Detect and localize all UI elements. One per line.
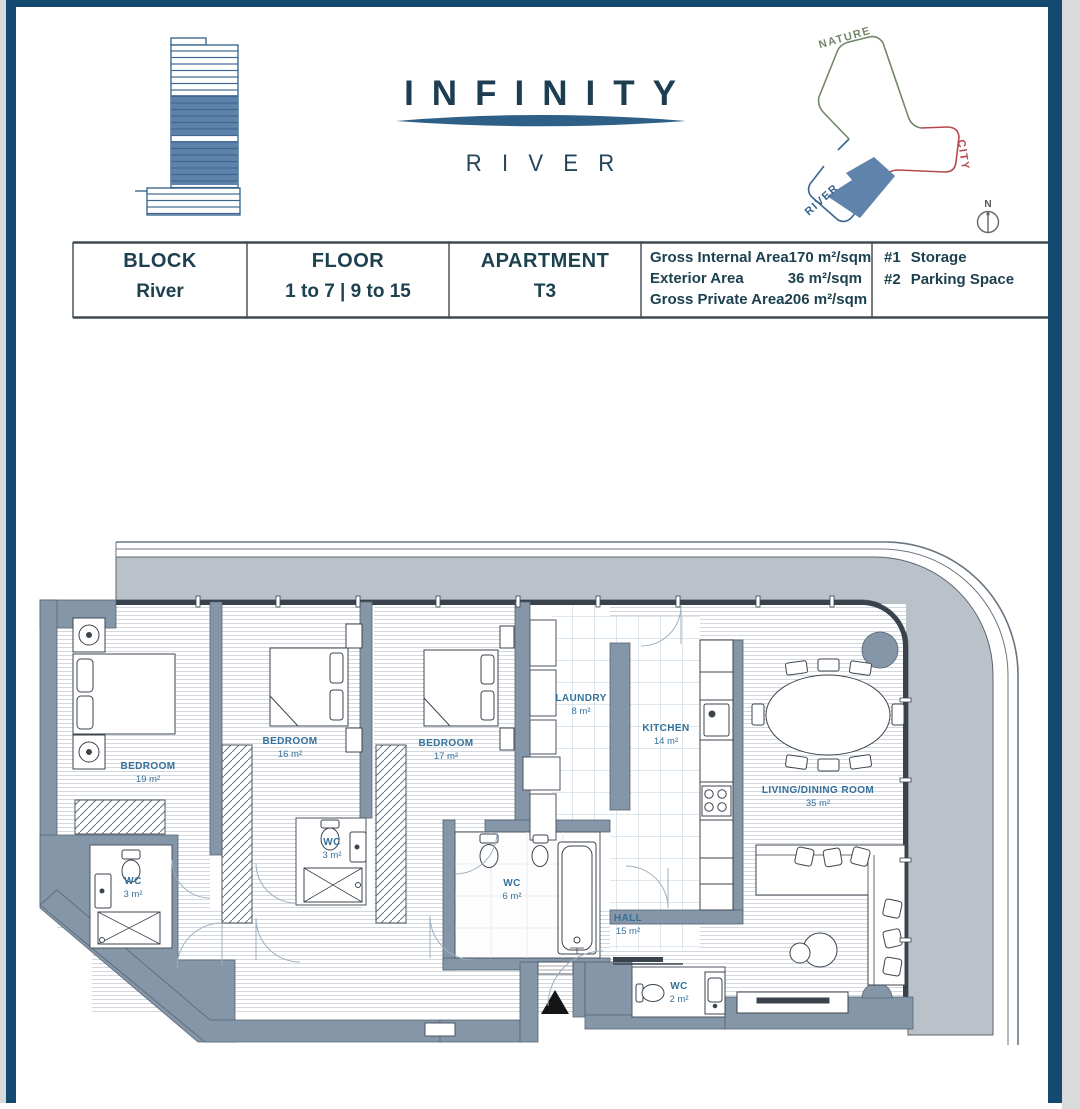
room-label-wc-2: WC 2 m²	[670, 980, 689, 1006]
site-plan-diagram	[809, 37, 999, 233]
area-row: Gross Private Area 206 m²/sqm	[650, 291, 862, 308]
area-row: Gross Internal Area 170 m²/sqm	[650, 249, 862, 266]
area-row: Exterior Area 36 m²/sqm	[650, 270, 862, 287]
compass-north-label: N	[984, 199, 991, 210]
table-header-block: BLOCK	[123, 250, 197, 273]
compass-icon	[978, 212, 999, 233]
table-value-floor: 1 to 7 | 9 to 15	[285, 281, 411, 303]
room-label-wc-16: WC 3 m²	[323, 836, 342, 862]
area-label: Gross Private Area	[650, 291, 785, 308]
coffee-table-small	[790, 943, 810, 963]
tv-bench	[737, 992, 848, 1013]
page-margin-left	[0, 0, 6, 1103]
table-value-block: River	[136, 281, 184, 303]
extra-label: Parking Space	[911, 271, 1014, 288]
table-header-floor: FLOOR	[312, 250, 385, 273]
extra-num: #2	[884, 271, 901, 288]
area-value: 206 m²/sqm	[785, 291, 868, 308]
site-arm-nature	[819, 37, 921, 139]
extra-row: #1 Storage	[884, 249, 967, 266]
brand-swoosh	[396, 115, 686, 126]
building-logo-icon	[135, 38, 240, 215]
table-value-apartment: T3	[534, 281, 556, 303]
table-header-apartment: APARTMENT	[481, 250, 610, 273]
area-value: 170 m²/sqm	[789, 249, 872, 266]
area-label: Exterior Area	[650, 270, 744, 287]
area-value: 36 m²/sqm	[788, 270, 862, 287]
extra-num: #1	[884, 249, 901, 266]
extra-label: Storage	[911, 249, 967, 266]
area-label: Gross Internal Area	[650, 249, 789, 266]
kitchen-counter	[700, 640, 733, 910]
room-label-bedroom-19: BEDROOM 19 m²	[120, 760, 175, 786]
extra-row: #2 Parking Space	[884, 271, 1014, 288]
site-arm-city	[885, 127, 959, 176]
room-label-bedroom-17: BEDROOM 17 m²	[418, 737, 473, 763]
room-label-kitchen: KITCHEN 14 m²	[642, 722, 689, 748]
room-label-laundry: LAUNDRY 8 m²	[555, 692, 606, 718]
brand-subtitle: RIVER	[446, 150, 635, 178]
room-label-wc-6: WC 6 m²	[503, 877, 522, 903]
room-label-hall: HALL 15 m²	[614, 912, 642, 938]
room-label-wc-19: WC 3 m²	[124, 875, 143, 901]
page-margin-right	[1062, 0, 1080, 1109]
brand-title: INFINITY	[386, 74, 694, 114]
room-label-bedroom-16: BEDROOM 16 m²	[262, 735, 317, 761]
room-label-living-dining: LIVING/DINING ROOM 35 m²	[762, 784, 874, 810]
